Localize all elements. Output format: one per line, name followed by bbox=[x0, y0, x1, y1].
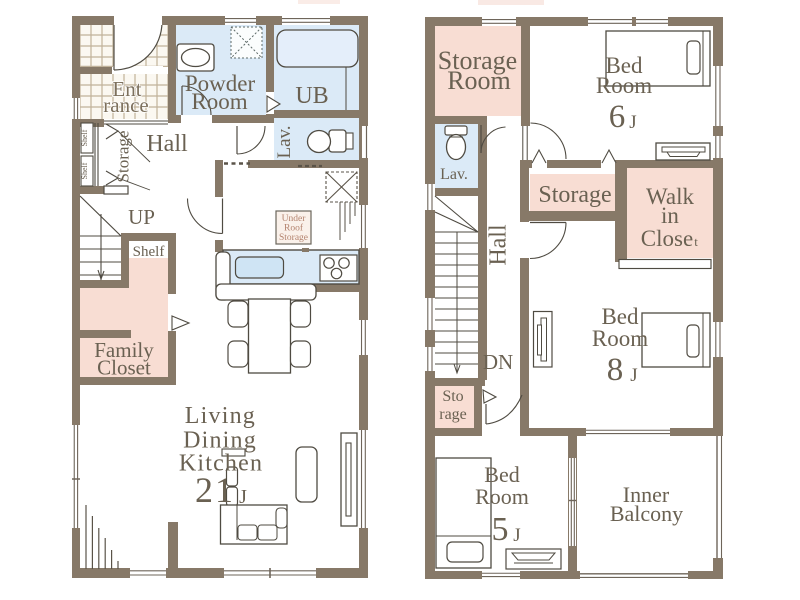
svg-text:Closet: Closet bbox=[97, 356, 151, 380]
svg-text:Room: Room bbox=[191, 89, 247, 114]
svg-text:Roof: Roof bbox=[284, 223, 304, 234]
svg-text:Storage: Storage bbox=[114, 131, 133, 183]
svg-text:rage: rage bbox=[439, 406, 467, 423]
svg-text:in: in bbox=[661, 203, 679, 228]
svg-text:Hall: Hall bbox=[486, 224, 512, 266]
svg-text:Shelf: Shelf bbox=[80, 162, 89, 179]
svg-text:J: J bbox=[629, 112, 636, 133]
svg-text:8: 8 bbox=[607, 352, 624, 388]
svg-text:Hall: Hall bbox=[146, 131, 188, 157]
svg-text:rance: rance bbox=[103, 93, 148, 117]
svg-text:6: 6 bbox=[609, 99, 626, 135]
svg-text:2: 2 bbox=[195, 470, 213, 510]
svg-text:Under: Under bbox=[282, 214, 307, 224]
svg-text:Shelf: Shelf bbox=[133, 244, 165, 260]
svg-text:J: J bbox=[513, 525, 520, 546]
svg-text:Close: Close bbox=[641, 226, 693, 251]
svg-text:Balcony: Balcony bbox=[610, 501, 683, 526]
svg-text:Storage: Storage bbox=[538, 182, 611, 208]
svg-text:DN: DN bbox=[483, 350, 513, 374]
svg-text:UP: UP bbox=[128, 205, 155, 229]
svg-text:J: J bbox=[630, 365, 637, 386]
svg-text:1: 1 bbox=[215, 470, 233, 510]
svg-text:Storage: Storage bbox=[279, 233, 308, 243]
svg-text:Sto: Sto bbox=[442, 388, 463, 405]
svg-text:UB: UB bbox=[295, 83, 328, 109]
svg-text:Room: Room bbox=[592, 326, 648, 351]
svg-text:Living: Living bbox=[185, 403, 256, 429]
svg-text:Shelf: Shelf bbox=[80, 129, 89, 146]
svg-text:Room: Room bbox=[475, 484, 529, 509]
svg-text:Lav.: Lav. bbox=[274, 125, 295, 158]
svg-text:t: t bbox=[694, 234, 698, 249]
svg-text:J: J bbox=[239, 486, 247, 508]
svg-text:Lav.: Lav. bbox=[440, 166, 468, 183]
svg-text:Room: Room bbox=[596, 73, 652, 98]
svg-text:Room: Room bbox=[447, 66, 511, 95]
svg-text:5: 5 bbox=[492, 511, 509, 548]
